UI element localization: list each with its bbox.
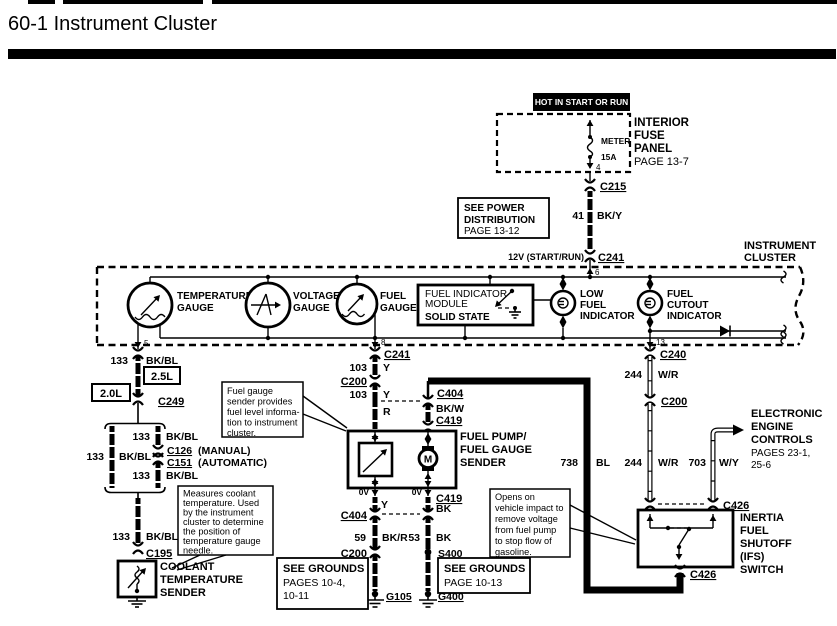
wire-bkw-color: BK/W xyxy=(436,403,464,415)
svg-text:PAGES 23-1,: PAGES 23-1, xyxy=(751,448,810,459)
svg-text:(IFS): (IFS) xyxy=(740,551,765,563)
motor-m-label: M xyxy=(424,455,432,466)
svg-text:738: 738 xyxy=(560,457,578,469)
svg-text:Y: Y xyxy=(383,362,390,374)
svg-text:cluster.: cluster. xyxy=(227,428,256,438)
svg-text:SOLID STATE: SOLID STATE xyxy=(425,312,490,323)
title-divider-bar xyxy=(8,49,836,59)
fuse-panel-label: PANEL xyxy=(634,143,672,155)
pin-13: 13 xyxy=(656,338,665,347)
svg-text:remove voltage: remove voltage xyxy=(495,514,558,524)
svg-text:W/R: W/R xyxy=(658,369,679,381)
svg-text:BK/BL: BK/BL xyxy=(146,531,179,543)
svg-text:53: 53 xyxy=(408,532,420,544)
connector-c404-b: C404 xyxy=(341,510,368,522)
svg-text:2.5L: 2.5L xyxy=(151,371,173,383)
svg-text:DISTRIBUTION: DISTRIBUTION xyxy=(464,215,535,226)
wire-bk-color: BK xyxy=(436,503,452,515)
svg-text:temperature gauge: temperature gauge xyxy=(183,536,261,546)
instrument-cluster-schematic: 60-1 Instrument Cluster HOT IN START OR … xyxy=(0,0,837,626)
fuse-icon xyxy=(587,120,594,169)
ifs-note: Opens on vehicle impact to remove voltag… xyxy=(490,489,636,557)
connector-c426-bottom: C426 xyxy=(690,569,716,581)
ground-g105: G105 xyxy=(386,591,412,603)
svg-text:SENDER: SENDER xyxy=(460,457,506,469)
cluster-torn-edge xyxy=(795,267,803,345)
svg-text:Fuel gauge: Fuel gauge xyxy=(227,386,273,396)
svg-text:sender provides: sender provides xyxy=(227,397,293,407)
svg-text:GAUGE: GAUGE xyxy=(177,303,214,314)
connector-c241-b: C241 xyxy=(384,349,410,361)
sender-ground-icon xyxy=(128,597,146,607)
svg-text:GAUGE: GAUGE xyxy=(293,303,330,314)
connector-c215: C215 xyxy=(600,181,626,193)
svg-text:INDICATOR: INDICATOR xyxy=(667,311,722,322)
pin-8: 8 xyxy=(381,338,386,347)
svg-text:ENGINE: ENGINE xyxy=(751,421,793,433)
svg-text:SEE GROUNDS: SEE GROUNDS xyxy=(444,563,525,575)
fuse-panel-label: INTERIOR xyxy=(634,117,690,129)
svg-text:(AUTOMATIC): (AUTOMATIC) xyxy=(198,457,267,469)
svg-text:PAGE 13-12: PAGE 13-12 xyxy=(464,226,520,237)
svg-text:W/Y: W/Y xyxy=(719,457,739,469)
diode-icon xyxy=(720,326,730,337)
svg-text:133: 133 xyxy=(112,531,130,543)
v12-start-run-label: 12V (START/RUN) xyxy=(508,252,584,262)
svg-text:133: 133 xyxy=(110,355,128,367)
svg-text:to stop flow of: to stop flow of xyxy=(495,536,552,546)
svg-text:BK/BL: BK/BL xyxy=(166,431,199,443)
see-grounds-left-box: SEE GROUNDS PAGES 10-4, 10-11 xyxy=(277,558,368,609)
fuel-gauge: FUEL GAUGE xyxy=(337,284,417,324)
svg-text:244: 244 xyxy=(624,369,642,381)
svg-text:CUTOUT: CUTOUT xyxy=(667,300,708,311)
wire-y-color: Y xyxy=(381,499,388,511)
svg-text:Y: Y xyxy=(383,389,390,401)
pin-5: 5 xyxy=(144,339,149,348)
connector-c195: C195 xyxy=(146,548,172,560)
svg-text:FUEL: FUEL xyxy=(380,291,406,302)
pin-6: 6 xyxy=(595,268,600,277)
svg-text:BK/BL: BK/BL xyxy=(119,451,152,463)
svg-text:FUEL GAUGE: FUEL GAUGE xyxy=(460,444,532,456)
connector-c404: C404 xyxy=(437,388,464,400)
svg-text:from fuel pump: from fuel pump xyxy=(495,525,556,535)
svg-text:VOLTAGE: VOLTAGE xyxy=(293,291,340,302)
svg-text:103: 103 xyxy=(349,362,367,374)
see-grounds-right-box: SEE GROUNDS PAGE 10-13 xyxy=(438,558,530,593)
svg-text:25-6: 25-6 xyxy=(751,460,771,471)
svg-text:FUEL PUMP/: FUEL PUMP/ xyxy=(460,431,526,443)
svg-text:by the instrument: by the instrument xyxy=(183,508,254,518)
svg-text:133: 133 xyxy=(86,451,104,463)
cluster-label: CLUSTER xyxy=(744,252,796,264)
svg-text:FUEL: FUEL xyxy=(667,289,693,300)
to-eec-arrow-icon xyxy=(733,425,744,436)
svg-text:CONTROLS: CONTROLS xyxy=(751,434,813,446)
svg-text:10-11: 10-11 xyxy=(283,590,309,602)
wire-41-num: 41 xyxy=(572,210,584,222)
svg-text:Measures coolant: Measures coolant xyxy=(183,489,256,499)
connector-c249: C249 xyxy=(158,396,184,408)
page-top-strip xyxy=(28,0,837,4)
svg-text:INERTIA: INERTIA xyxy=(740,512,784,524)
svg-text:103: 103 xyxy=(349,389,367,401)
svg-text:Opens on: Opens on xyxy=(495,492,535,502)
fuse-panel-page-ref: PAGE 13-7 xyxy=(634,156,689,168)
fuse-panel-label: FUSE xyxy=(634,130,665,142)
connector-c241: C241 xyxy=(598,252,624,264)
wire-r-color: R xyxy=(383,406,391,418)
ov-left: 0V xyxy=(359,487,370,497)
temperature-gauge: TEMPERATURE GAUGE xyxy=(128,283,253,327)
svg-text:BK/BL: BK/BL xyxy=(146,355,179,367)
svg-text:BK/BL: BK/BL xyxy=(166,470,199,482)
power-feed: HOT IN START OR RUN METER 15A 4 INTERIOR… xyxy=(458,93,690,277)
ifs-switch-box xyxy=(638,510,733,567)
svg-text:FUEL: FUEL xyxy=(740,525,769,537)
svg-text:the position of: the position of xyxy=(183,527,241,537)
hot-label: HOT IN START OR RUN xyxy=(535,97,628,107)
svg-text:fuel level informa-: fuel level informa- xyxy=(227,407,300,417)
svg-text:GAUGE: GAUGE xyxy=(380,303,417,314)
wiring-diagram-page: 60-1 Instrument Cluster HOT IN START OR … xyxy=(0,0,837,626)
svg-text:MODULE: MODULE xyxy=(425,299,468,310)
svg-text:SWITCH: SWITCH xyxy=(740,564,783,576)
fuse-pin: 4 xyxy=(596,163,601,172)
svg-text:244: 244 xyxy=(624,457,642,469)
cluster-label: INSTRUMENT xyxy=(744,240,816,252)
svg-text:59: 59 xyxy=(354,532,366,544)
svg-text:PAGES 10-4,: PAGES 10-4, xyxy=(283,577,345,589)
ground-g400-icon xyxy=(419,591,437,607)
connector-c200: C200 xyxy=(341,376,367,388)
wire-41-color: BK/Y xyxy=(597,210,622,222)
fuse-rating: 15A xyxy=(601,152,616,162)
svg-text:133: 133 xyxy=(132,470,150,482)
svg-text:2.0L: 2.0L xyxy=(100,388,122,400)
coolant-note: Measures coolant temperature. Used by th… xyxy=(172,486,273,570)
svg-text:BL: BL xyxy=(596,457,611,469)
fuel-sender-note: Fuel gauge sender provides fuel level in… xyxy=(222,382,347,438)
svg-text:ELECTRONIC: ELECTRONIC xyxy=(751,408,823,420)
svg-text:gasoline.: gasoline. xyxy=(495,547,532,557)
svg-text:vehicle impact to: vehicle impact to xyxy=(495,503,563,513)
fuel-cutout-indicator: FUEL CUTOUT INDICATOR xyxy=(638,278,722,329)
svg-text:TEMPERATURE: TEMPERATURE xyxy=(177,291,253,302)
fuse-name: METER xyxy=(601,136,630,146)
svg-text:SENDER: SENDER xyxy=(160,587,206,599)
svg-text:SEE GROUNDS: SEE GROUNDS xyxy=(283,563,364,575)
svg-text:SHUTOFF: SHUTOFF xyxy=(740,538,792,550)
page-title: 60-1 Instrument Cluster xyxy=(8,13,217,35)
voltage-gauge: VOLTAGE GAUGE xyxy=(246,283,340,327)
svg-text:temperature. Used: temperature. Used xyxy=(183,498,259,508)
svg-text:BK/R: BK/R xyxy=(382,532,408,544)
connector-c240: C240 xyxy=(660,349,686,361)
svg-text:tion to instrument: tion to instrument xyxy=(227,418,298,428)
svg-text:(MANUAL): (MANUAL) xyxy=(198,445,251,457)
ov-right: 0V xyxy=(412,487,423,497)
svg-text:PAGE 10-13: PAGE 10-13 xyxy=(444,577,502,589)
svg-text:needle.: needle. xyxy=(183,546,213,556)
svg-text:TEMPERATURE: TEMPERATURE xyxy=(160,574,243,586)
svg-text:LOW: LOW xyxy=(580,289,604,300)
svg-text:BK: BK xyxy=(436,532,452,544)
svg-text:FUEL: FUEL xyxy=(580,300,606,311)
low-fuel-indicator: LOW FUEL INDICATOR xyxy=(533,278,635,339)
connector-c151: C151 xyxy=(167,457,192,469)
svg-text:W/R: W/R xyxy=(658,457,679,469)
svg-text:cluster to determine: cluster to determine xyxy=(183,517,264,527)
svg-text:703: 703 xyxy=(688,457,706,469)
connector-c200-c: C200 xyxy=(661,396,687,408)
fuel-indicator-module: FUEL INDICATOR MODULE SOLID STATE xyxy=(418,285,533,325)
svg-text:SEE POWER: SEE POWER xyxy=(464,203,525,214)
svg-text:133: 133 xyxy=(132,431,150,443)
svg-text:INDICATOR: INDICATOR xyxy=(580,311,635,322)
connector-c126: C126 xyxy=(167,445,192,457)
connector-c419: C419 xyxy=(436,415,462,427)
